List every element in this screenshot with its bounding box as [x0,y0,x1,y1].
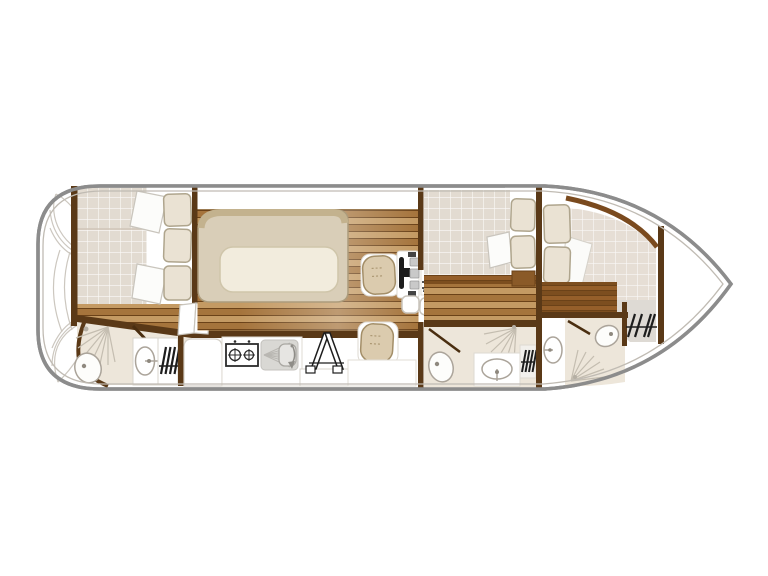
bow-floor-band [542,282,617,312]
corridor-washbasin-icon [544,337,562,363]
mid-cabin-wall-left [418,186,424,270]
mid-cushion-2 [510,236,535,269]
galley-wall-sliver [178,336,184,386]
boat-floorplan-canvas [0,0,768,576]
step-pad-1 [402,296,419,313]
mid-divider-band [424,320,536,327]
swivel-chair-front [362,255,396,295]
sink-icon [261,340,298,370]
locker-door-1 [178,303,196,335]
mid-cushion-1 [510,199,535,232]
shower-drain-dot [84,327,89,332]
bow-cushion-1 [543,205,570,244]
stove-icon [226,340,258,366]
salon-window-strip [198,186,419,210]
fridge-cabinet [184,339,222,386]
aft-cabin-wall-left [71,186,78,326]
mid-pillow [487,232,512,268]
mid-bow-wall [536,186,542,389]
bow-cushion-2 [543,247,570,284]
mid-shower-dot [512,325,516,329]
bow-shower-dot [573,375,577,379]
salon-table [220,247,338,292]
aft-cabin [71,186,198,334]
mid-wall-left-lower [418,322,424,389]
salon-aft-counter [348,360,416,386]
aft-cushion-2 [163,229,191,263]
aft-pillow-bottom [132,264,167,304]
mid-cabinet [512,271,535,286]
boat-floorplan [0,0,768,576]
mid-cabin-floor [424,284,536,320]
bow-bath-wall-right [622,302,627,346]
bow-bath-top-wall [542,312,628,318]
aft-cushion-1 [163,194,191,227]
aft-cushion-3 [164,266,191,300]
bow-bulkhead [658,226,664,344]
swivel-chair-rear [360,323,394,363]
aft-cabin-wall-right [192,186,198,303]
